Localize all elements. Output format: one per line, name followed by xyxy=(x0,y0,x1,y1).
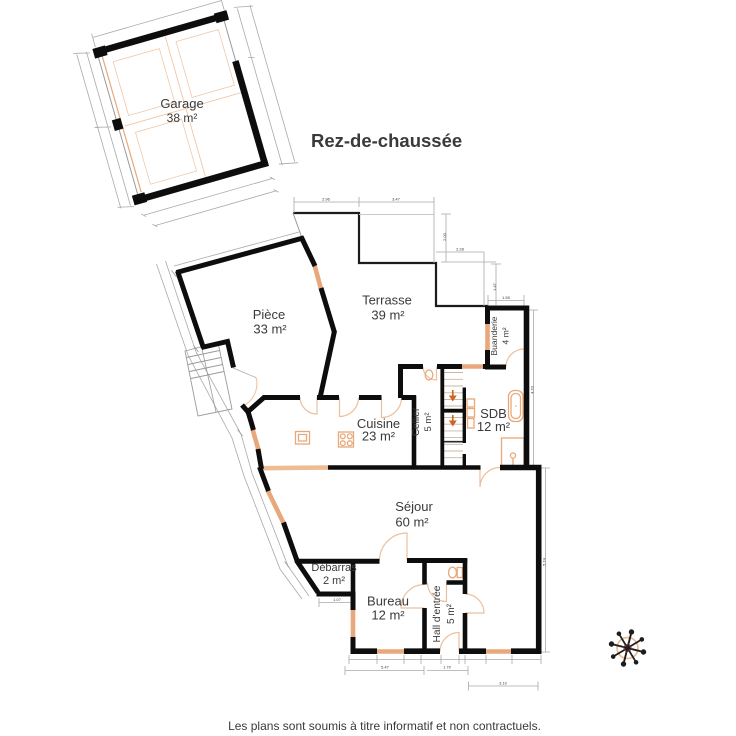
svg-text:39 m²: 39 m² xyxy=(371,308,405,323)
svg-text:Débarras: Débarras xyxy=(311,562,357,574)
svg-text:60 m²: 60 m² xyxy=(395,515,429,530)
svg-text:33 m²: 33 m² xyxy=(253,322,287,337)
svg-text:Séjour: Séjour xyxy=(395,499,433,514)
svg-text:2.00: 2.00 xyxy=(442,232,447,241)
svg-text:Cellier: Cellier xyxy=(411,407,422,436)
svg-text:23 m²: 23 m² xyxy=(362,429,396,444)
svg-text:Bureau: Bureau xyxy=(367,594,409,609)
svg-text:2 m²: 2 m² xyxy=(323,575,345,587)
svg-text:1.55: 1.55 xyxy=(502,295,511,300)
svg-text:Terrasse: Terrasse xyxy=(362,293,412,308)
svg-text:1.70: 1.70 xyxy=(443,665,452,670)
svg-text:Pièce: Pièce xyxy=(253,307,286,322)
svg-text:38 m²: 38 m² xyxy=(167,111,198,125)
svg-text:3.47: 3.47 xyxy=(392,197,401,202)
svg-text:1.07: 1.07 xyxy=(333,597,342,602)
svg-text:12 m²: 12 m² xyxy=(371,608,405,623)
svg-text:Les plans sont soumis à titre: Les plans sont soumis à titre informatif… xyxy=(228,719,541,733)
svg-text:2.96: 2.96 xyxy=(322,197,331,202)
svg-text:5 m²: 5 m² xyxy=(446,603,457,624)
svg-text:5 m²: 5 m² xyxy=(423,413,434,432)
svg-text:4.70: 4.70 xyxy=(530,385,535,394)
svg-text:1.47: 1.47 xyxy=(492,282,497,291)
svg-text:3.10: 3.10 xyxy=(499,681,508,686)
svg-text:5.47: 5.47 xyxy=(381,665,390,670)
svg-text:Hall d'entrée: Hall d'entrée xyxy=(432,585,443,642)
svg-text:4 m²: 4 m² xyxy=(501,327,511,344)
svg-text:2.28: 2.28 xyxy=(456,247,465,252)
svg-text:5.74: 5.74 xyxy=(542,557,547,566)
svg-text:12 m²: 12 m² xyxy=(477,419,511,434)
svg-text:Buanderie: Buanderie xyxy=(489,316,499,355)
svg-text:Rez-de-chaussée: Rez-de-chaussée xyxy=(311,130,462,151)
svg-text:Garage: Garage xyxy=(160,96,203,111)
